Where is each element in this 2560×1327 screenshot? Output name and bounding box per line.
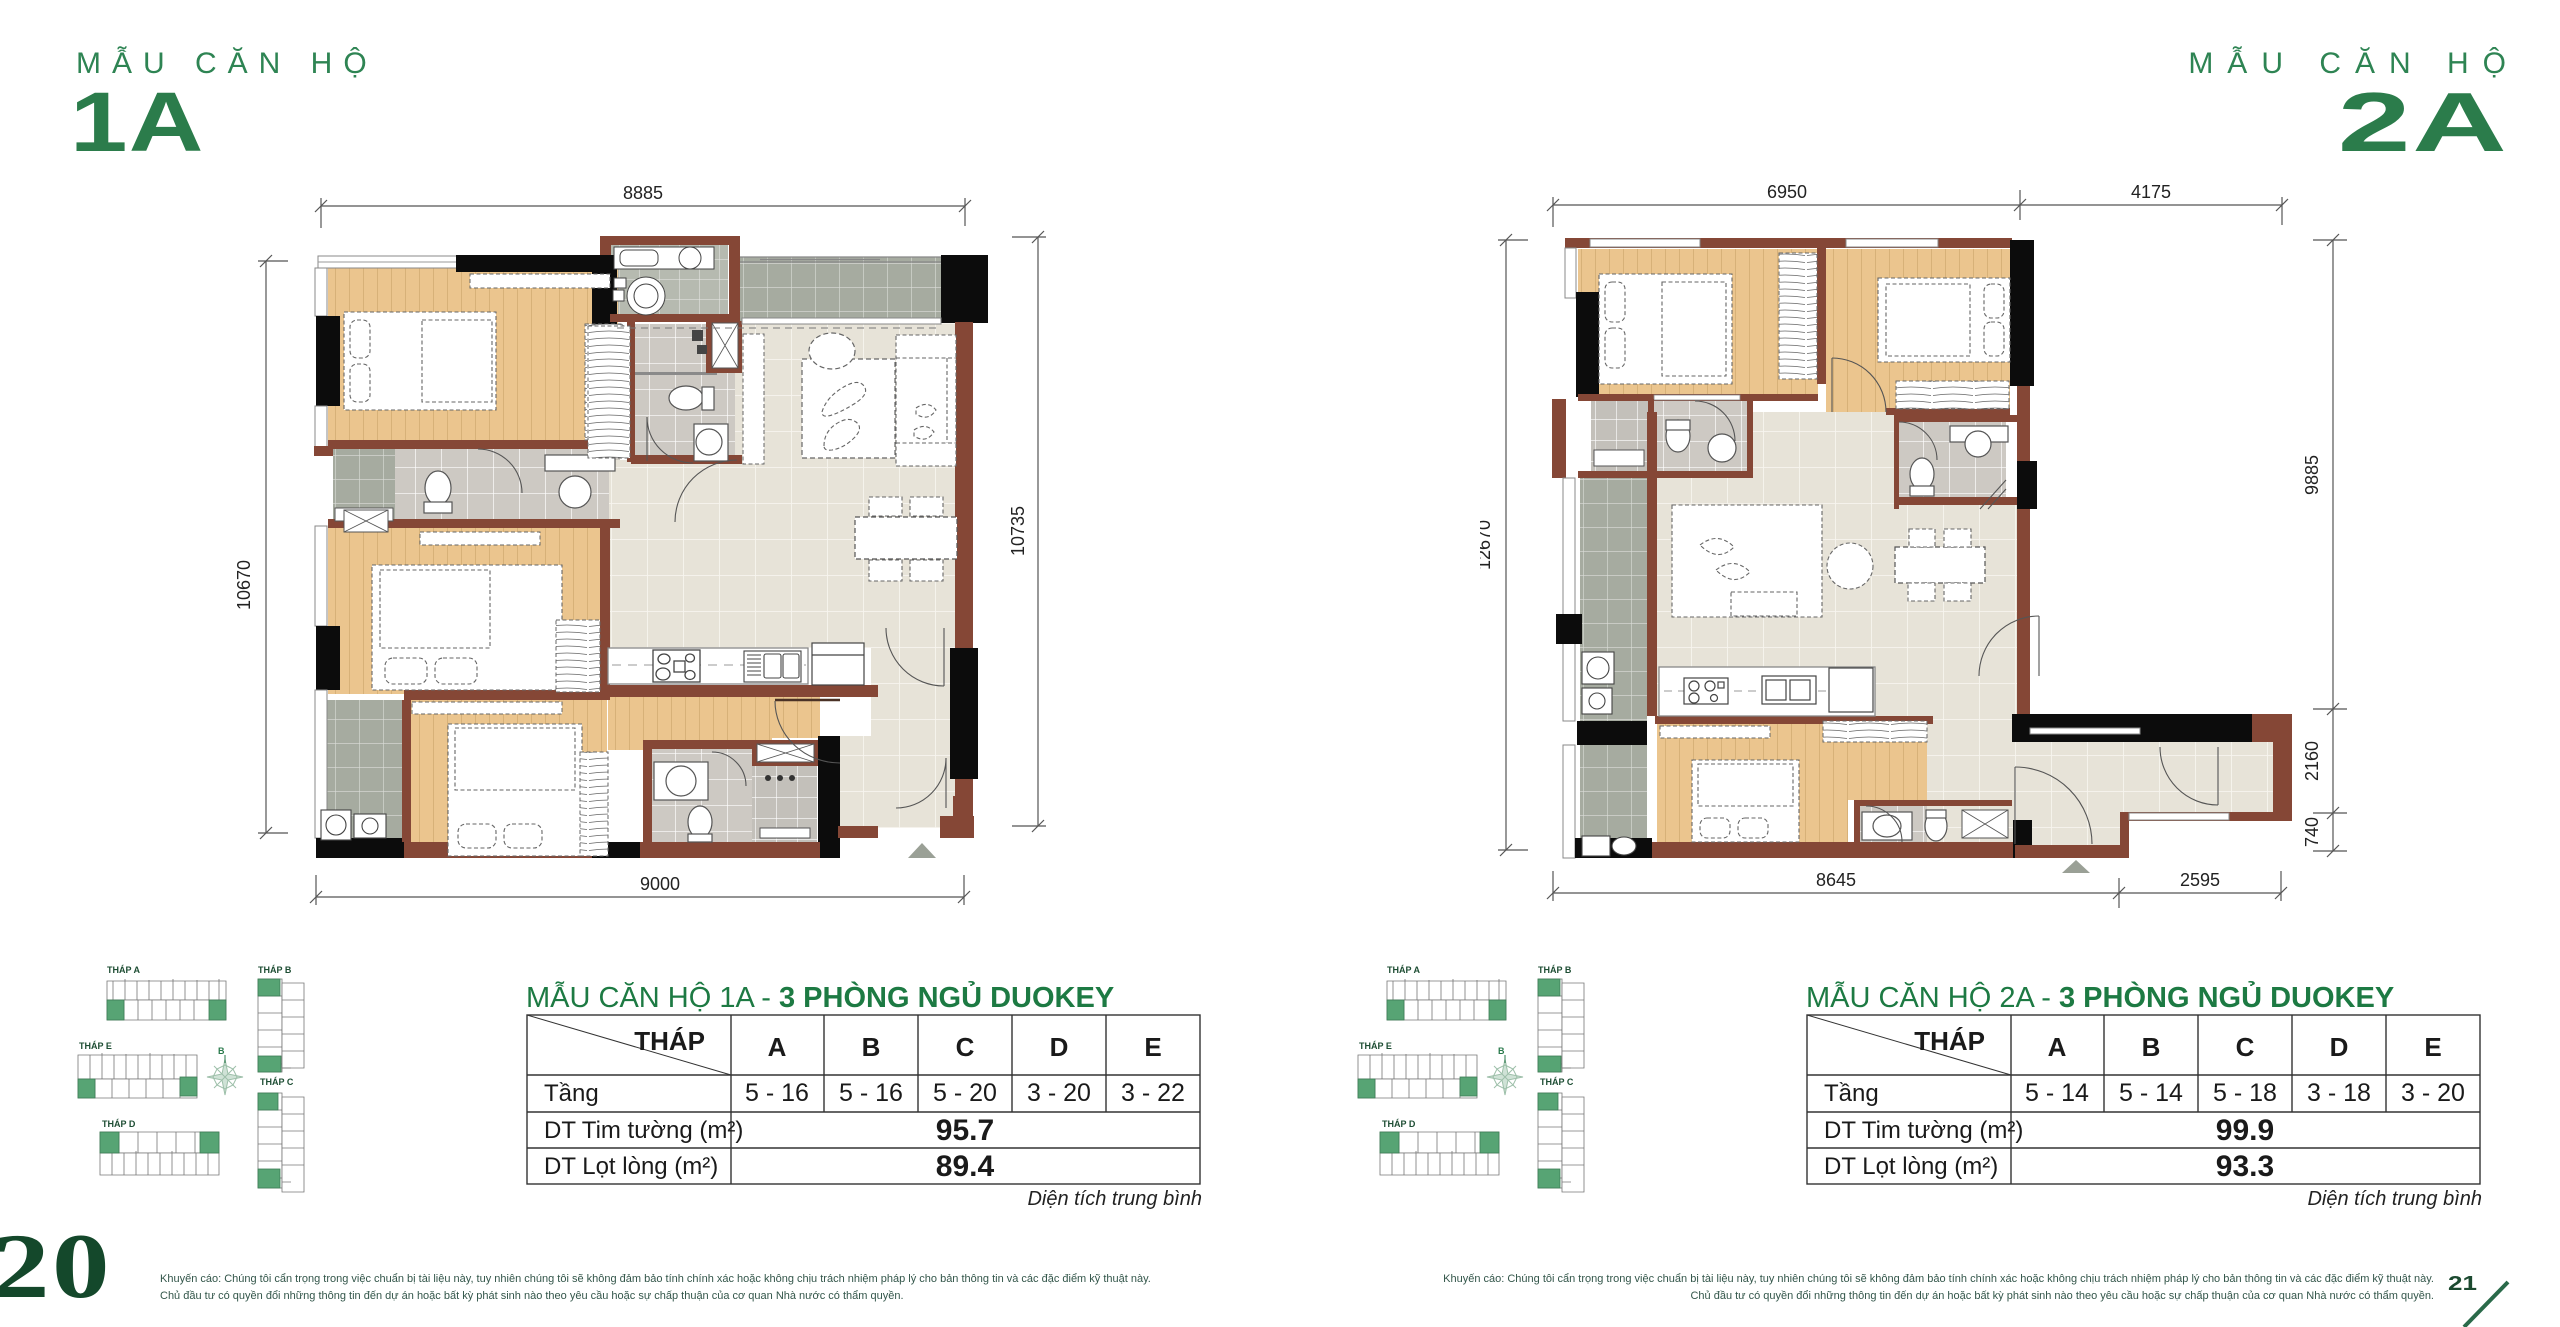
svg-text:E: E <box>2424 1032 2441 1062</box>
svg-text:Tầng: Tầng <box>1824 1080 1879 1107</box>
svg-text:B: B <box>2142 1032 2161 1062</box>
svg-text:6950: 6950 <box>1767 182 1807 202</box>
svg-text:D: D <box>1050 1032 1069 1062</box>
svg-text:THÁP: THÁP <box>1914 1026 1985 1056</box>
svg-text:740: 740 <box>2302 817 2322 847</box>
svg-text:THÁP E: THÁP E <box>79 1041 112 1051</box>
svg-text:E: E <box>1144 1032 1161 1062</box>
svg-text:DT Lọt lòng (m²): DT Lọt lòng (m²) <box>1824 1153 1998 1180</box>
svg-text:3 - 18: 3 - 18 <box>2307 1079 2371 1107</box>
svg-text:5 - 16: 5 - 16 <box>839 1079 903 1107</box>
svg-text:95.7: 95.7 <box>936 1114 994 1147</box>
svg-text:3 - 22: 3 - 22 <box>1121 1079 1185 1107</box>
svg-text:THÁP A: THÁP A <box>107 965 141 975</box>
svg-text:10670: 10670 <box>234 560 254 610</box>
svg-text:DT Tim tường (m²): DT Tim tường (m²) <box>544 1117 743 1144</box>
svg-text:THÁP C: THÁP C <box>260 1077 294 1087</box>
svg-text:5 - 14: 5 - 14 <box>2119 1079 2183 1107</box>
svg-text:MẪU CĂN HỘ 2A - 3 PHÒNG NGỦ DU: MẪU CĂN HỘ 2A - 3 PHÒNG NGỦ DUOKEY <box>1806 980 2394 1014</box>
svg-text:Tầng: Tầng <box>544 1080 599 1107</box>
svg-text:12670: 12670 <box>1480 520 1494 570</box>
svg-text:D: D <box>2330 1032 2349 1062</box>
svg-text:THÁP B: THÁP B <box>258 965 292 975</box>
svg-text:2595: 2595 <box>2180 870 2220 890</box>
svg-text:5 - 14: 5 - 14 <box>2025 1079 2089 1107</box>
svg-text:99.9: 99.9 <box>2216 1114 2274 1147</box>
svg-text:4175: 4175 <box>2131 182 2171 202</box>
svg-text:9000: 9000 <box>640 874 680 894</box>
svg-text:MẪU CĂN HỘ 1A - 3 PHÒNG NGỦ DU: MẪU CĂN HỘ 1A - 3 PHÒNG NGỦ DUOKEY <box>526 980 1114 1014</box>
svg-text:89.4: 89.4 <box>936 1150 995 1183</box>
svg-text:3 - 20: 3 - 20 <box>1027 1079 1091 1107</box>
svg-text:C: C <box>2236 1032 2255 1062</box>
svg-text:9885: 9885 <box>2302 455 2322 495</box>
svg-text:THÁP: THÁP <box>634 1026 705 1056</box>
svg-text:10735: 10735 <box>1008 506 1028 556</box>
svg-text:A: A <box>768 1032 787 1062</box>
svg-text:B: B <box>218 1046 225 1056</box>
svg-text:THÁP D: THÁP D <box>102 1119 136 1129</box>
svg-text:Diện tích trung bình: Diện tích trung bình <box>2307 1188 2482 1210</box>
svg-text:8885: 8885 <box>623 183 663 203</box>
svg-text:B: B <box>862 1032 881 1062</box>
svg-text:8645: 8645 <box>1816 870 1856 890</box>
svg-text:2160: 2160 <box>2302 741 2322 781</box>
svg-text:A: A <box>2048 1032 2067 1062</box>
svg-text:DT Tim tường (m²): DT Tim tường (m²) <box>1824 1117 2023 1144</box>
svg-text:Diện tích trung bình: Diện tích trung bình <box>1027 1188 1202 1210</box>
svg-text:C: C <box>956 1032 975 1062</box>
svg-text:5 - 18: 5 - 18 <box>2213 1079 2277 1107</box>
svg-text:3 - 20: 3 - 20 <box>2401 1079 2465 1107</box>
svg-text:93.3: 93.3 <box>2216 1150 2274 1183</box>
svg-text:5 - 16: 5 - 16 <box>745 1079 809 1107</box>
svg-text:5 - 20: 5 - 20 <box>933 1079 997 1107</box>
svg-text:DT Lọt lòng (m²): DT Lọt lòng (m²) <box>544 1153 718 1180</box>
